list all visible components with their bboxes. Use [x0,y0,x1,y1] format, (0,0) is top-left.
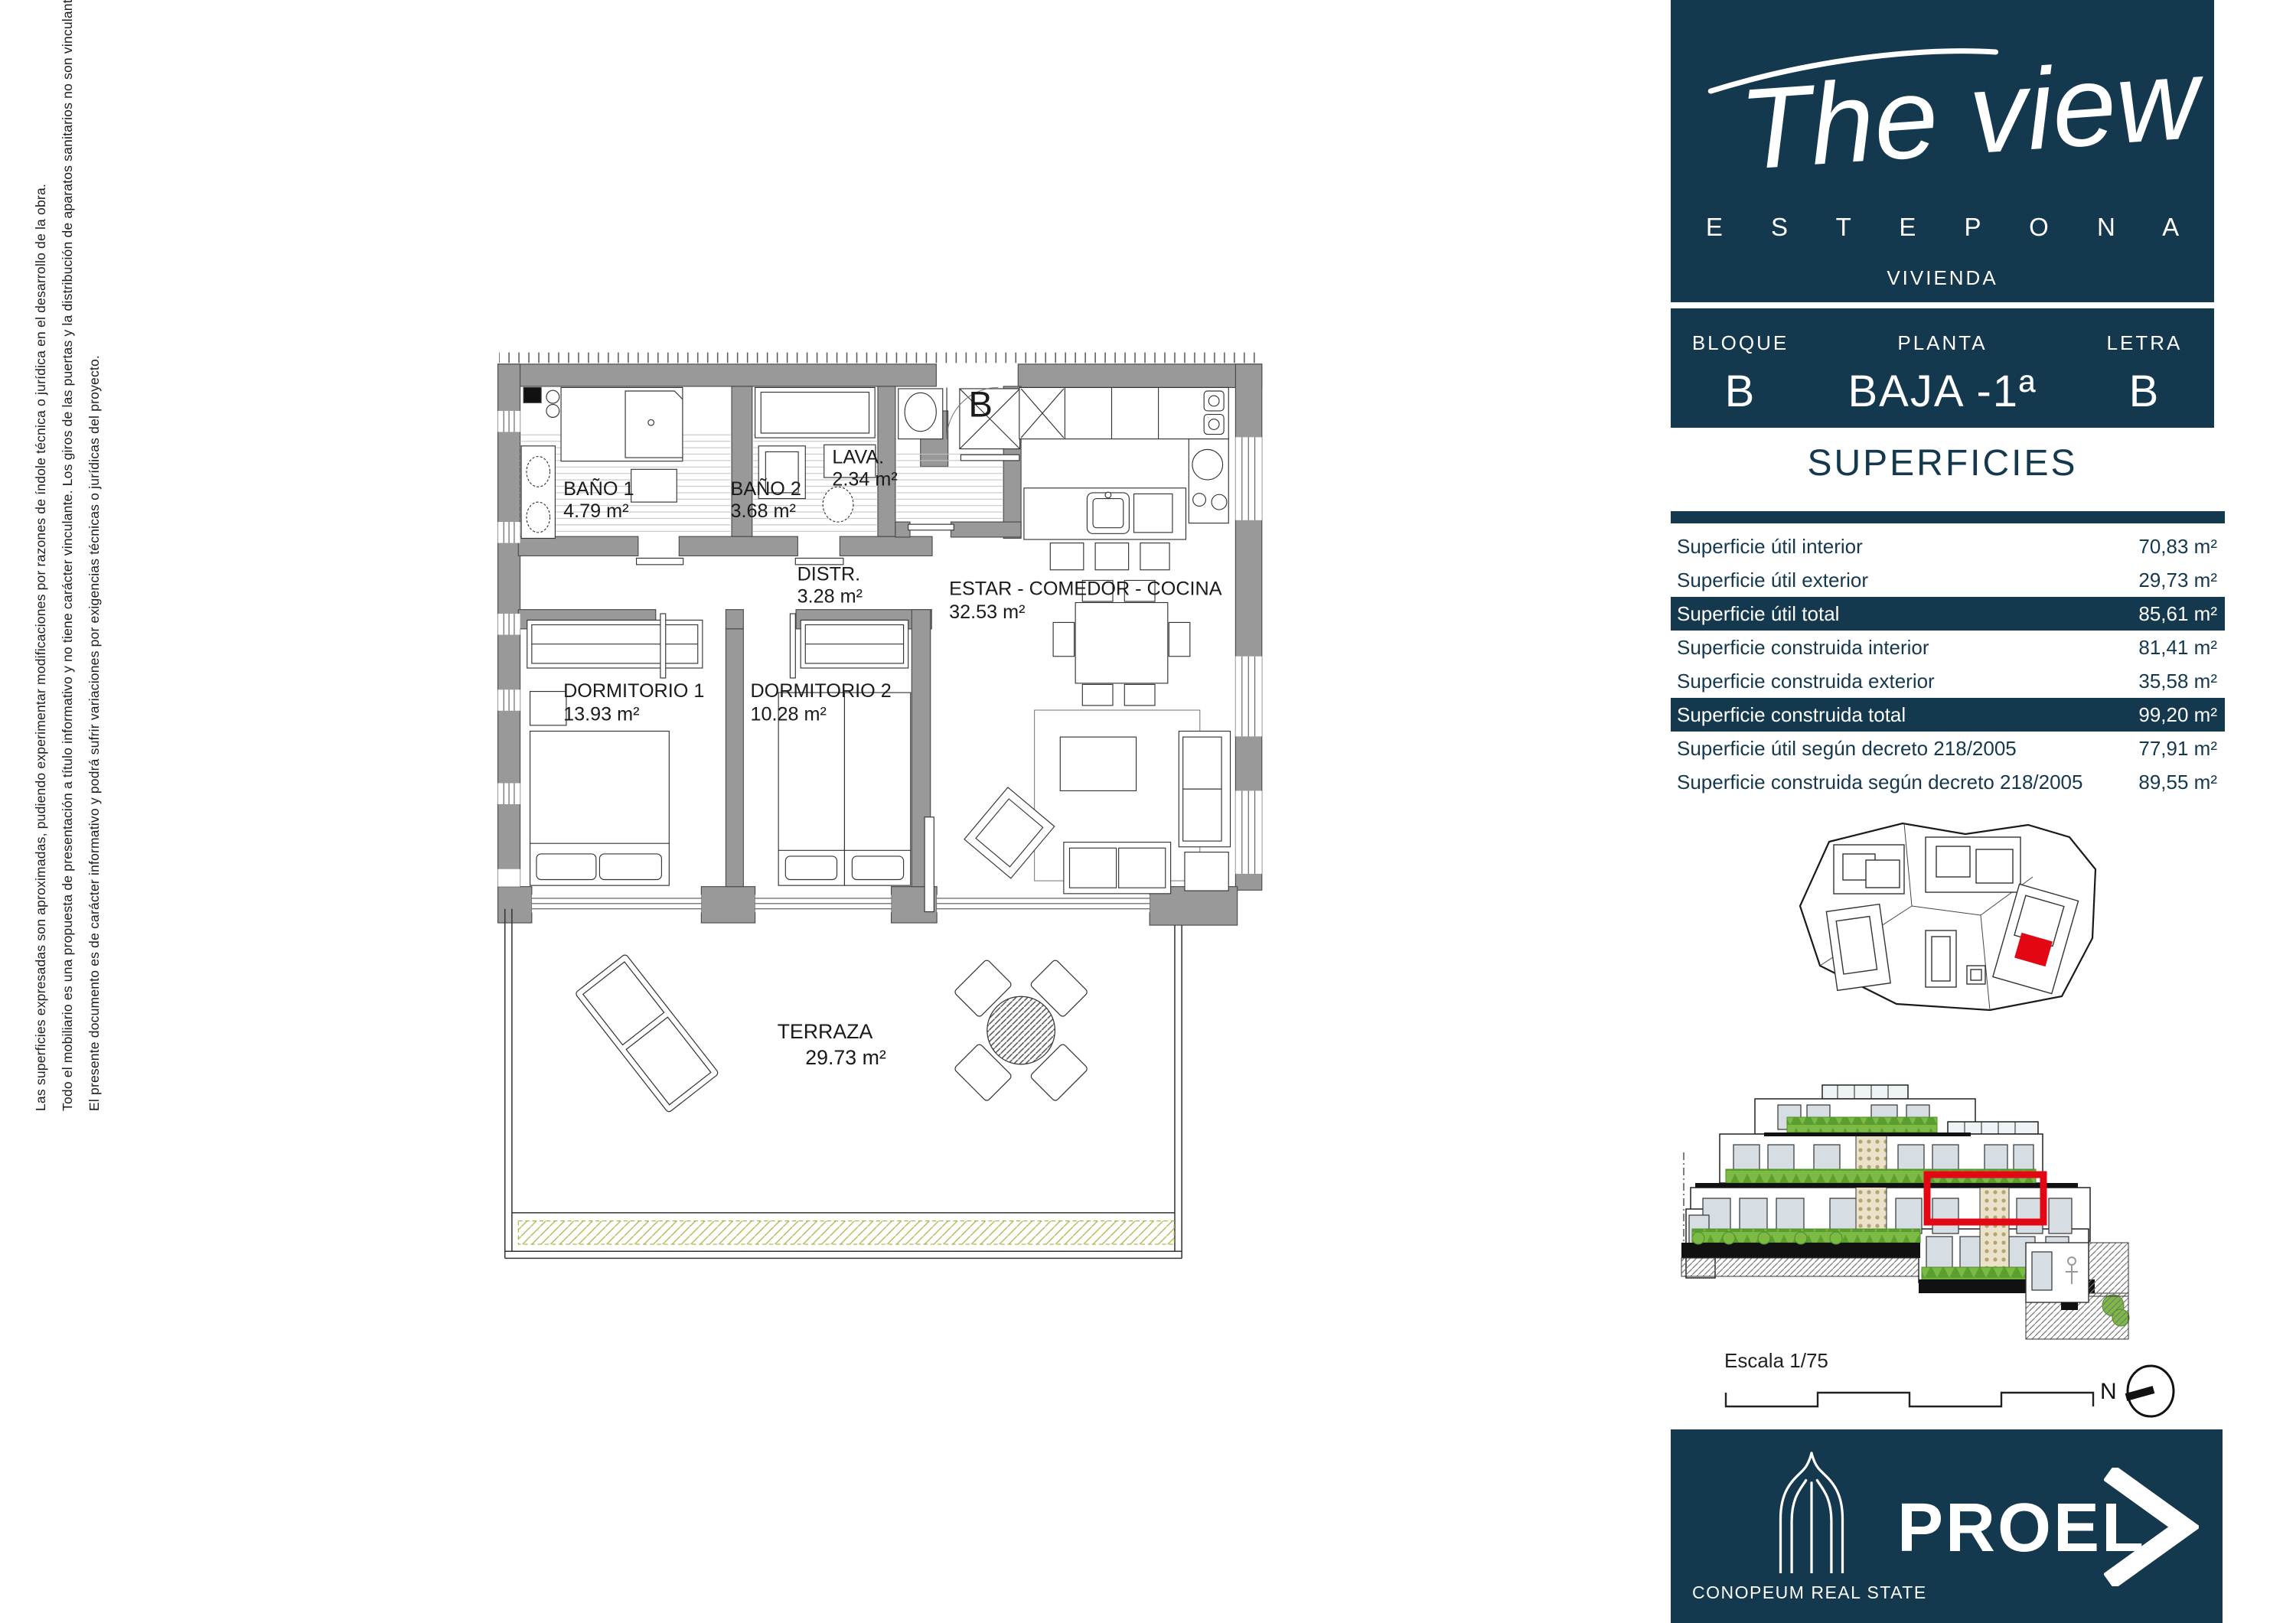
room-area-bano2: 3.68 m² [731,500,796,522]
table-row: Superficie útil interior70,83 m² [1671,530,2225,563]
letra-label: LETRA [2075,331,2214,355]
planta-column: PLANTA BAJA -1ª [1810,308,2075,428]
row-label: Superficie útil interior [1671,535,2138,559]
disclaimer-text: Las superficies expresadas son aproximad… [28,40,108,1111]
svg-text:The view: The view [1736,33,2210,194]
row-label: Superficie construida interior [1671,636,2138,660]
table-row-highlight: Superficie construida total99,20 m² [1671,698,2225,732]
bloque-column: BLOQUE B [1671,308,1810,428]
disclaimer-line-1: El presente documento es de carácter inf… [81,40,108,1111]
row-value: 35,58 m² [2138,670,2225,693]
wall-tick-marks [499,353,1260,363]
room-area-terraza: 29.73 m² [805,1046,886,1069]
row-value: 89,55 m² [2138,771,2225,794]
row-label: Superficie útil según decreto 218/2005 [1671,737,2138,761]
room-label-bano2: BAÑO 2 [731,477,801,500]
logo-subtitle: E S T E P O N A [1671,213,2214,242]
room-area-dorm1: 13.93 m² [563,704,639,725]
bloque-value: B [1671,366,1810,417]
disclaimer-line-3: Las superficies expresadas son aproximad… [28,40,54,1111]
table-row: Superficie construida interior81,41 m² [1671,631,2225,664]
table-row: Superficie útil según decreto 218/200577… [1671,732,2225,765]
company-name: CONOPEUM REAL STATE [1692,1582,1927,1603]
room-label-terraza: TERRAZA [778,1020,873,1043]
room-label-dorm2: DORMITORIO 2 [750,680,891,702]
row-label: Superficie útil exterior [1671,569,2138,592]
room-area-distr: 3.28 m² [797,585,863,607]
room-area-lava: 2.34 m² [832,469,897,490]
room-label-dorm1: DORMITORIO 1 [563,680,704,702]
planta-label: PLANTA [1810,331,2075,355]
brand-footer: CONOPEUM REAL STATE PROEL [1671,1429,2223,1623]
room-area-estar: 32.53 m² [949,601,1025,623]
table-row: Superficie útil exterior29,73 m² [1671,563,2225,597]
room-label-lava: LAVA. [832,447,884,468]
terrace [505,909,1182,1259]
the-view-logo: The view [1671,14,2214,205]
superficies-title: SUPERFICIES [1671,442,2214,484]
table-row-highlight: Superficie útil total85,61 m² [1671,597,2225,631]
letra-value: B [2075,366,2214,417]
superficies-table: Superficie útil interior70,83 m² Superfi… [1671,530,2225,799]
north-compass: N [2097,1359,2183,1423]
conopeum-arch-icon [1761,1449,1862,1573]
disclaimer-line-2: Todo el mobiliario es una propuesta de p… [54,40,81,1111]
table-row: Superficie construida exterior35,58 m² [1671,664,2225,698]
room-area-bano1: 4.79 m² [563,500,628,522]
row-label: Superficie construida según decreto 218/… [1671,771,2138,794]
floorplan-sheet: Las superficies expresadas son aproximad… [0,0,2296,1623]
room-label-bano1: BAÑO 1 [563,477,634,500]
planta-value: BAJA -1ª [1810,366,2075,417]
terrace-table-set [954,959,1088,1102]
row-label: Superficie construida exterior [1671,670,2138,693]
scale-label: Escala 1/75 [1724,1349,1828,1373]
row-value: 77,91 m² [2138,737,2225,761]
row-value: 99,20 m² [2138,703,2225,727]
plan-unit-letter: B [968,385,993,425]
proel-chevron-icon [2104,1468,2199,1586]
letra-column: LETRA B [2075,308,2214,428]
row-value: 29,73 m² [2138,569,2225,592]
sun-lounger [575,953,719,1113]
table-row: Superficie construida según decreto 218/… [1671,765,2225,799]
room-label-distr: DISTR. [797,563,861,585]
unit-identity-band: BLOQUE B PLANTA BAJA -1ª LETRA B [1671,308,2214,428]
row-value: 85,61 m² [2138,602,2225,626]
row-value: 81,41 m² [2138,636,2225,660]
room-area-dorm2: 10.28 m² [750,704,826,725]
row-value: 70,83 m² [2138,535,2225,559]
scale-bar [1724,1387,2095,1413]
superficies-divider-bar [1671,511,2225,523]
row-label: Superficie construida total [1671,703,2138,727]
row-label: Superficie útil total [1671,602,2138,626]
bloque-label: BLOQUE [1671,331,1810,355]
project-header: The view E S T E P O N A VIVIENDA [1671,0,2214,302]
site-plan [1789,816,2106,1021]
north-letter: N [2100,1379,2117,1404]
building-elevation [1680,1079,2133,1348]
dwelling-type-label: VIVIENDA [1671,266,2214,290]
room-label-estar: ESTAR - COMEDOR - COCINA [949,578,1222,600]
floor-plan: B BAÑO 1 4.79 m² BAÑO 2 3.68 m² LAVA. 2.… [475,329,1378,1324]
